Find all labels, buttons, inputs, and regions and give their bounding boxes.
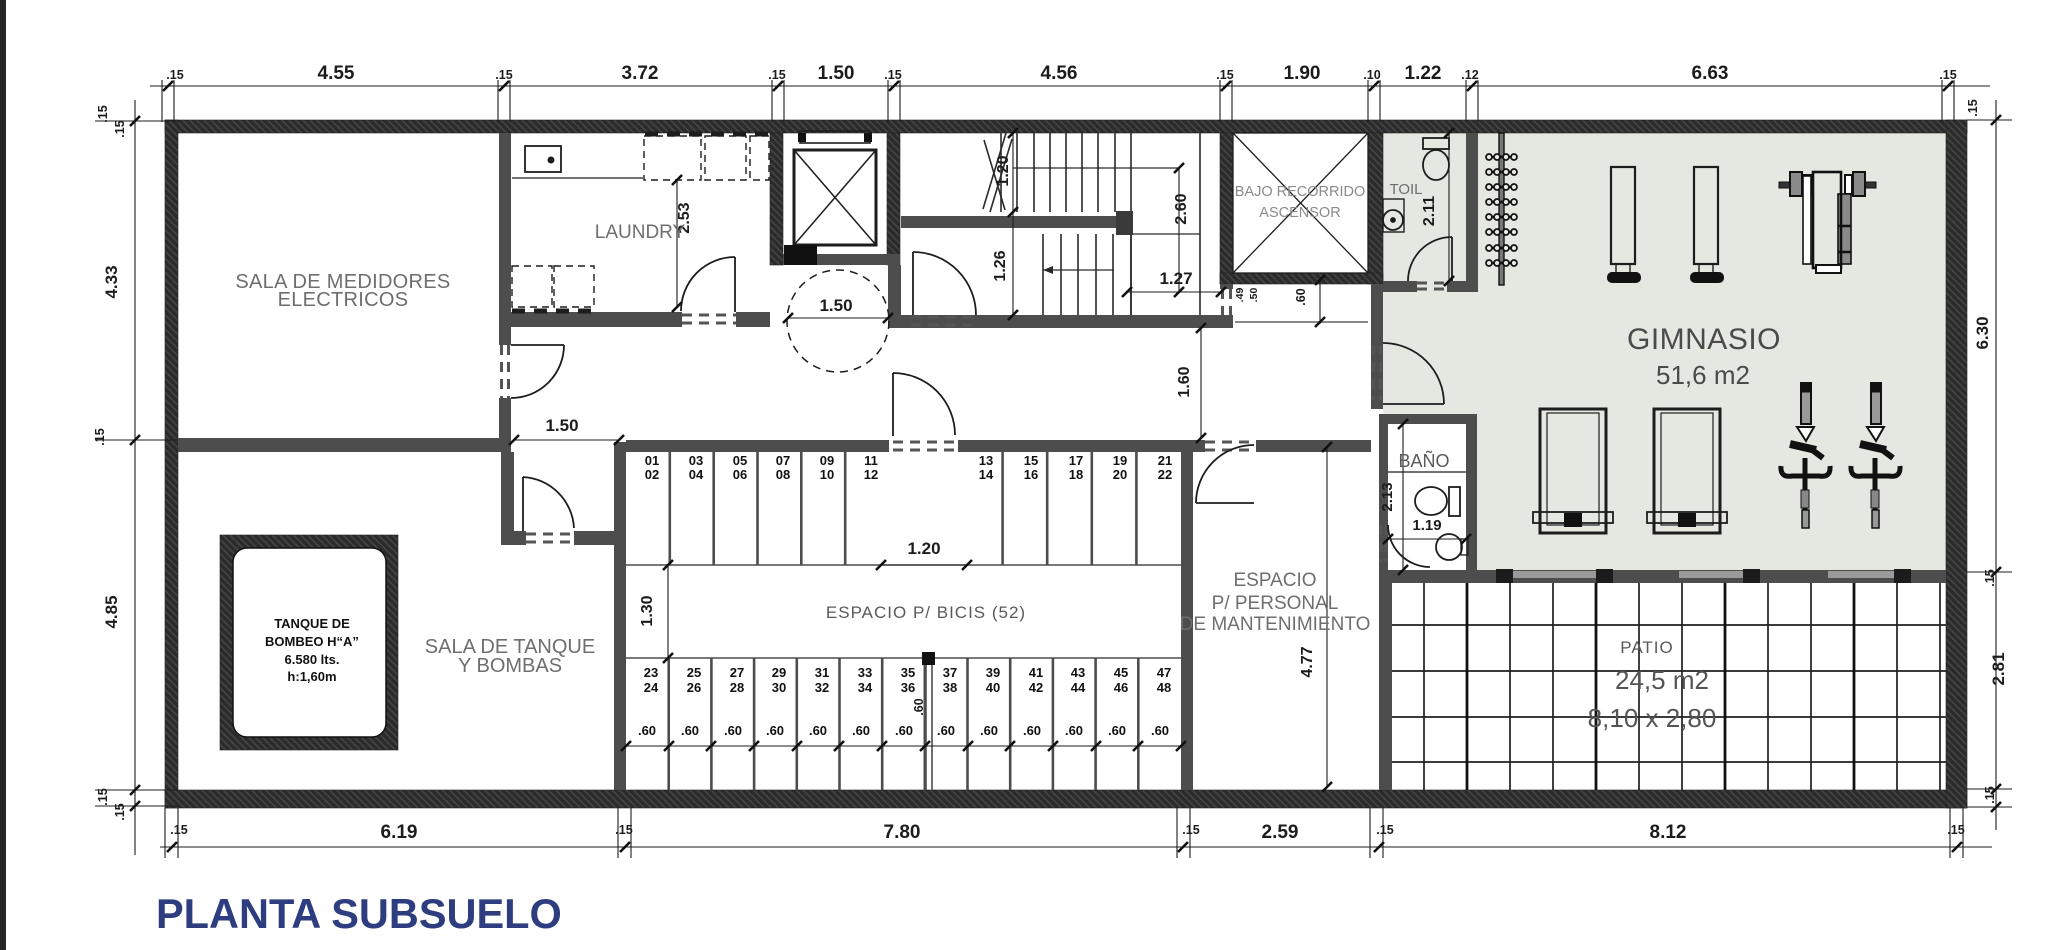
svg-text:.60: .60 — [912, 698, 926, 715]
svg-text:25: 25 — [687, 665, 701, 680]
svg-text:40: 40 — [986, 680, 1000, 695]
svg-text:17: 17 — [1069, 453, 1083, 468]
svg-text:1.27: 1.27 — [1159, 269, 1192, 288]
svg-text:12: 12 — [864, 467, 878, 482]
svg-text:.60: .60 — [681, 723, 699, 738]
svg-text:2.11: 2.11 — [1421, 196, 1438, 226]
svg-text:11: 11 — [864, 453, 878, 468]
svg-text:BAJO RECORRIDO: BAJO RECORRIDO — [1235, 184, 1366, 200]
svg-text:35: 35 — [901, 665, 915, 680]
svg-text:4.55: 4.55 — [318, 63, 355, 84]
svg-text:24: 24 — [644, 680, 659, 695]
svg-text:18: 18 — [1069, 467, 1083, 482]
svg-text:Y BOMBAS: Y BOMBAS — [458, 655, 562, 677]
svg-text:20: 20 — [1113, 467, 1127, 482]
svg-text:42: 42 — [1029, 680, 1043, 695]
svg-text:.15: .15 — [1966, 99, 1980, 116]
svg-text:1.50: 1.50 — [819, 296, 852, 315]
svg-text:.10: .10 — [1363, 68, 1380, 82]
svg-text:.15: .15 — [1947, 823, 1964, 837]
svg-text:41: 41 — [1029, 665, 1043, 680]
svg-text:h:1,60m: h:1,60m — [287, 669, 336, 684]
svg-text:1.60: 1.60 — [1176, 366, 1193, 397]
svg-text:.15: .15 — [1182, 823, 1199, 837]
svg-text:.60: .60 — [1294, 288, 1308, 305]
svg-text:.15: .15 — [1983, 569, 1997, 586]
svg-text:.15: .15 — [113, 803, 127, 820]
svg-text:PATIO: PATIO — [1620, 638, 1674, 657]
svg-text:39: 39 — [986, 665, 1000, 680]
svg-text:1.20: 1.20 — [995, 155, 1012, 186]
svg-text:P/ PERSONAL: P/ PERSONAL — [1212, 593, 1339, 614]
svg-text:.60: .60 — [852, 723, 870, 738]
svg-text:47: 47 — [1157, 665, 1171, 680]
svg-text:.60: .60 — [766, 723, 784, 738]
svg-text:4.77: 4.77 — [1299, 646, 1316, 677]
svg-text:.15: .15 — [768, 68, 785, 82]
svg-text:1.50: 1.50 — [545, 416, 578, 435]
svg-text:13: 13 — [979, 453, 993, 468]
svg-text:ELECTRICOS: ELECTRICOS — [278, 289, 409, 311]
svg-text:09: 09 — [820, 453, 834, 468]
svg-text:37: 37 — [943, 665, 957, 680]
svg-text:.15: .15 — [615, 823, 632, 837]
svg-text:ESPACIO: ESPACIO — [1233, 570, 1316, 591]
svg-text:.60: .60 — [980, 723, 998, 738]
svg-text:.60: .60 — [1108, 723, 1126, 738]
svg-text:33: 33 — [858, 665, 872, 680]
svg-text:1.50: 1.50 — [818, 63, 855, 84]
svg-text:1.19: 1.19 — [1412, 517, 1441, 534]
svg-text:.60: .60 — [724, 723, 742, 738]
svg-text:6.580 lts.: 6.580 lts. — [285, 652, 340, 667]
svg-text:.15: .15 — [1939, 68, 1956, 82]
svg-text:24,5 m2: 24,5 m2 — [1615, 665, 1709, 695]
svg-text:.12: .12 — [1461, 68, 1478, 82]
svg-text:8.12: 8.12 — [1650, 822, 1687, 843]
svg-text:2.81: 2.81 — [1989, 652, 2008, 685]
svg-text:2.59: 2.59 — [1262, 822, 1299, 843]
svg-text:48: 48 — [1157, 680, 1171, 695]
svg-text:.60: .60 — [638, 723, 656, 738]
svg-text:27: 27 — [730, 665, 744, 680]
svg-text:03: 03 — [689, 453, 703, 468]
svg-text:4.85: 4.85 — [102, 595, 121, 628]
svg-text:06: 06 — [733, 467, 747, 482]
svg-text:01: 01 — [645, 453, 659, 468]
svg-text:38: 38 — [943, 680, 957, 695]
svg-text:TANQUE DE: TANQUE DE — [274, 616, 350, 631]
svg-text:.49: .49 — [1234, 288, 1246, 303]
svg-text:.60: .60 — [809, 723, 827, 738]
svg-text:1.20: 1.20 — [907, 539, 940, 558]
svg-text:.60: .60 — [1065, 723, 1083, 738]
svg-text:31: 31 — [815, 665, 829, 680]
svg-text:.60: .60 — [937, 723, 955, 738]
svg-text:44: 44 — [1071, 680, 1086, 695]
svg-text:23: 23 — [644, 665, 658, 680]
svg-text:10: 10 — [820, 467, 834, 482]
svg-text:.15: .15 — [1983, 786, 1997, 803]
svg-text:1.22: 1.22 — [1405, 63, 1442, 84]
svg-text:ASCENSOR: ASCENSOR — [1259, 205, 1340, 221]
svg-text:.50: .50 — [1248, 288, 1260, 303]
svg-text:6.63: 6.63 — [1692, 63, 1729, 84]
svg-text:26: 26 — [687, 680, 701, 695]
svg-text:14: 14 — [979, 467, 994, 482]
svg-text:30: 30 — [772, 680, 786, 695]
svg-text:2.13: 2.13 — [1379, 482, 1396, 511]
svg-text:8,10 x 2,80: 8,10 x 2,80 — [1588, 703, 1717, 733]
svg-text:36: 36 — [901, 680, 915, 695]
svg-text:1.90: 1.90 — [1284, 63, 1321, 84]
svg-text:28: 28 — [730, 680, 744, 695]
svg-text:.15: .15 — [96, 105, 110, 122]
svg-text:43: 43 — [1071, 665, 1085, 680]
svg-text:22: 22 — [1158, 467, 1172, 482]
svg-text:19: 19 — [1113, 453, 1127, 468]
svg-text:3.72: 3.72 — [622, 63, 659, 84]
svg-text:GIMNASIO: GIMNASIO — [1627, 323, 1781, 356]
svg-text:1.30: 1.30 — [639, 595, 656, 626]
svg-text:LAUNDRY: LAUNDRY — [595, 222, 686, 243]
svg-text:.15: .15 — [170, 823, 187, 837]
svg-text:07: 07 — [776, 453, 790, 468]
svg-text:BOMBEO H“A”: BOMBEO H“A” — [265, 634, 359, 649]
svg-text:02: 02 — [645, 467, 659, 482]
svg-text:.15: .15 — [1376, 823, 1393, 837]
svg-text:05: 05 — [733, 453, 747, 468]
svg-text:TOIL: TOIL — [1389, 181, 1422, 198]
svg-text:04: 04 — [689, 467, 704, 482]
svg-text:6.19: 6.19 — [381, 822, 418, 843]
svg-text:29: 29 — [772, 665, 786, 680]
svg-text:.60: .60 — [895, 723, 913, 738]
svg-text:7.80: 7.80 — [884, 822, 921, 843]
svg-text:46: 46 — [1114, 680, 1128, 695]
svg-text:16: 16 — [1024, 467, 1038, 482]
svg-text:2.60: 2.60 — [1173, 193, 1190, 224]
svg-text:21: 21 — [1158, 453, 1172, 468]
svg-text:ESPACIO P/ BICIS (52): ESPACIO P/ BICIS (52) — [826, 603, 1026, 622]
svg-text:.15: .15 — [1216, 68, 1233, 82]
svg-text:.15: .15 — [96, 788, 110, 805]
svg-text:4.33: 4.33 — [102, 265, 121, 298]
svg-text:15: 15 — [1024, 453, 1038, 468]
svg-text:34: 34 — [858, 680, 873, 695]
svg-text:BAÑO: BAÑO — [1398, 450, 1449, 471]
svg-text:08: 08 — [776, 467, 790, 482]
svg-text:PLANTA SUBSUELO: PLANTA SUBSUELO — [156, 890, 562, 937]
svg-text:.15: .15 — [884, 68, 901, 82]
svg-text:.60: .60 — [1023, 723, 1041, 738]
svg-text:6.30: 6.30 — [1973, 316, 1992, 349]
svg-text:1.26: 1.26 — [992, 250, 1009, 281]
svg-text:.60: .60 — [1151, 723, 1169, 738]
svg-text:.15: .15 — [495, 68, 512, 82]
svg-text:DE MANTENIMIENTO: DE MANTENIMIENTO — [1180, 614, 1371, 635]
svg-text:45: 45 — [1114, 665, 1128, 680]
svg-text:.15: .15 — [113, 120, 127, 137]
svg-text:51,6 m2: 51,6 m2 — [1656, 360, 1750, 390]
svg-text:.15: .15 — [93, 428, 107, 445]
svg-text:32: 32 — [815, 680, 829, 695]
svg-text:4.56: 4.56 — [1041, 63, 1078, 84]
svg-text:.15: .15 — [166, 68, 183, 82]
